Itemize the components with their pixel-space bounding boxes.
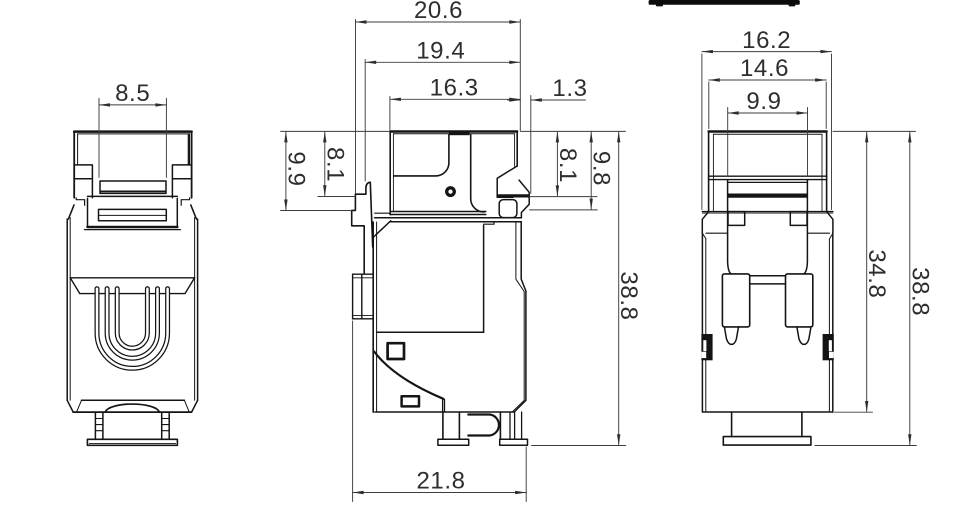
- svg-text:8.1: 8.1: [554, 148, 581, 183]
- svg-text:21.8: 21.8: [416, 467, 465, 494]
- svg-text:34.8: 34.8: [863, 249, 890, 298]
- svg-text:19.4: 19.4: [416, 38, 465, 65]
- svg-text:9.8: 9.8: [588, 151, 615, 186]
- svg-text:38.8: 38.8: [906, 267, 933, 316]
- svg-text:1.3: 1.3: [552, 75, 587, 102]
- svg-text:8.1: 8.1: [321, 147, 348, 182]
- svg-text:16.3: 16.3: [430, 75, 479, 102]
- svg-text:20.6: 20.6: [414, 0, 463, 24]
- svg-text:14.6: 14.6: [740, 55, 789, 82]
- svg-text:16.2: 16.2: [742, 27, 791, 54]
- svg-text:38.8: 38.8: [615, 271, 642, 320]
- svg-text:9.9: 9.9: [746, 88, 781, 115]
- svg-text:9.9: 9.9: [282, 151, 309, 186]
- svg-text:8.5: 8.5: [115, 80, 150, 107]
